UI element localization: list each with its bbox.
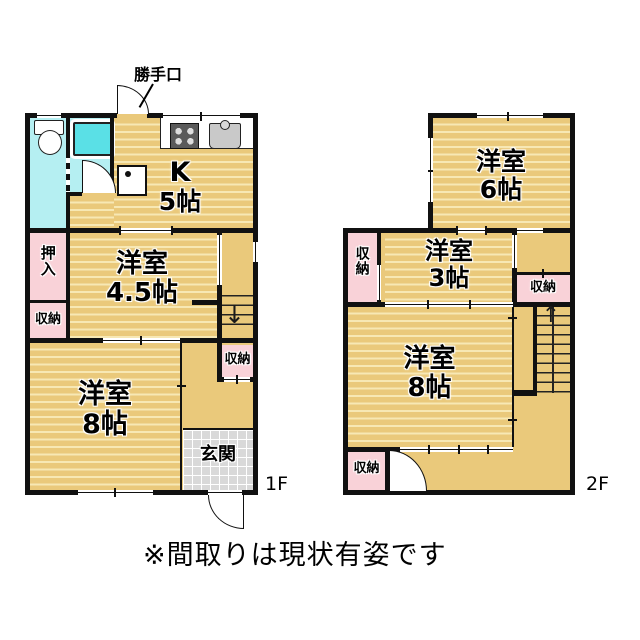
closet-label-2f-bottom: 収納: [348, 462, 385, 477]
tick-mark: [469, 300, 471, 309]
room-label-2f-room6: 洋室 6帖: [455, 148, 547, 204]
tick-mark: [456, 226, 458, 235]
room-size: 6帖: [455, 176, 547, 204]
tick-mark: [177, 385, 186, 387]
room-name: 洋室: [40, 380, 170, 410]
window: [37, 113, 61, 118]
window: [428, 138, 433, 170]
tick-mark: [114, 488, 116, 497]
tick-mark: [487, 445, 489, 454]
wall: [343, 228, 348, 495]
room-size: 8帖: [40, 410, 170, 440]
wall: [66, 192, 82, 196]
floor1-label: 1F: [265, 473, 288, 495]
tick-mark: [542, 269, 544, 278]
door-opening: [517, 228, 543, 233]
wall: [253, 113, 258, 495]
room-name: K: [140, 158, 220, 188]
entrance-label: 玄関: [194, 445, 242, 465]
tick-mark: [119, 226, 121, 235]
room-name: 洋室: [399, 238, 499, 265]
room-name: 洋室: [455, 148, 547, 176]
room-label-2f-room8: 洋室 8帖: [382, 345, 477, 403]
tick-mark: [171, 226, 173, 235]
tick-mark: [508, 419, 517, 421]
window: [428, 172, 433, 202]
window: [253, 242, 258, 262]
room-label-1f-kitchen: K 5帖: [140, 158, 220, 216]
tick-mark: [200, 112, 202, 121]
toilet-bowl-icon: [38, 130, 62, 155]
tick-mark: [458, 445, 460, 454]
sliding-door-opening: [120, 228, 173, 233]
wall: [25, 113, 30, 495]
room-size: 8帖: [382, 374, 477, 403]
tick-mark: [428, 445, 430, 454]
closet-door-opening: [377, 265, 381, 300]
back-door-label: 勝手口: [134, 66, 182, 84]
sliding-door-opening: [385, 302, 513, 307]
room-label-1f-room45: 洋室 4.5帖: [72, 250, 212, 308]
wall: [512, 307, 514, 447]
floor1-kitchen-floor-ext: [70, 196, 114, 228]
wall: [180, 343, 182, 490]
room-label-2f-room3: 洋室 3帖: [399, 238, 499, 292]
wall: [30, 300, 66, 303]
bathtub-icon: [73, 122, 112, 156]
tick-mark: [507, 112, 509, 121]
wall: [343, 490, 575, 495]
entrance-door-swing: [208, 495, 244, 529]
floorplan-canvas: 勝手口 K 5帖 洋室 4.5帖 洋室 8帖 押入 収納 収納 玄関 ↓ 1F: [0, 0, 640, 640]
room-size: 5帖: [140, 188, 220, 216]
tick-mark: [236, 375, 238, 384]
sliding-door-opening: [217, 235, 222, 285]
room-size: 4.5帖: [72, 279, 212, 308]
floor2-label: 2F: [586, 473, 609, 495]
closet-label-2f-right: 収納: [518, 281, 568, 296]
stairs-down-arrow-icon: ↓: [224, 300, 244, 329]
tick-mark: [427, 300, 429, 309]
sliding-door-opening: [400, 447, 513, 452]
kitchen-sink-icon: [209, 123, 241, 149]
room-label-1f-room8: 洋室 8帖: [40, 380, 170, 440]
closet-label-oshiire: 押入: [39, 245, 56, 277]
tick-mark: [485, 226, 487, 235]
wall: [533, 307, 537, 392]
wall: [66, 233, 70, 340]
door-opening: [512, 235, 517, 268]
room-name: 洋室: [72, 250, 212, 279]
room-size: 3帖: [399, 265, 499, 292]
closet-label-2f-left: 収納: [353, 246, 369, 276]
wall: [183, 428, 253, 430]
stairs-up-arrow-icon: ↑: [541, 303, 561, 328]
door-opening: [457, 228, 487, 233]
closet-label-1f-hall: 収納: [222, 353, 253, 368]
closet-label-1f-left: 収納: [31, 313, 65, 328]
bath-toilet-door-marks: [66, 158, 70, 192]
wall: [512, 390, 537, 396]
window: [477, 113, 543, 118]
stove-icon: [170, 123, 199, 149]
tick-mark: [140, 336, 142, 345]
footnote-text: ※間取りは現状有姿です: [143, 533, 447, 572]
tick-mark: [508, 317, 517, 319]
room-name: 洋室: [382, 345, 477, 374]
